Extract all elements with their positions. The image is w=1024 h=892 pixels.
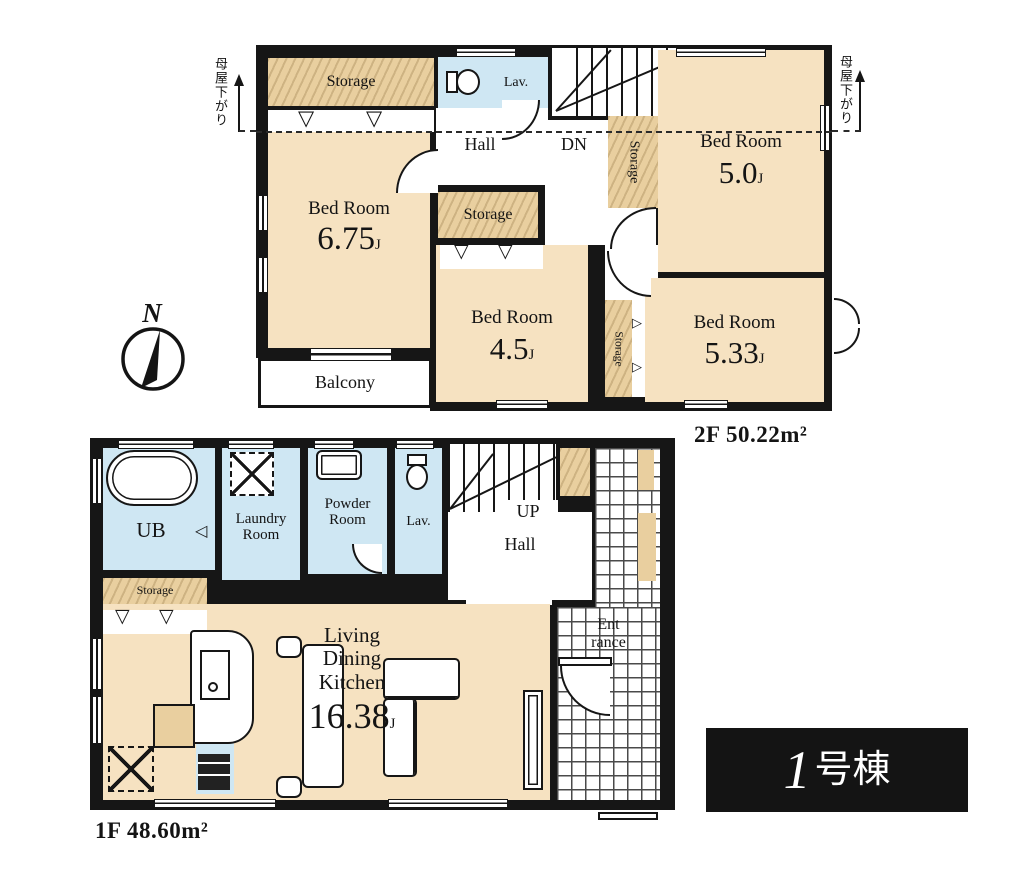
window	[92, 458, 102, 504]
stair-diagonal	[450, 456, 557, 510]
folding-door-mark: ◁	[195, 524, 207, 540]
toilet-icon	[405, 454, 431, 494]
dining-chair	[276, 636, 302, 658]
roof-dash-stub	[832, 130, 861, 132]
entrance-door-leaf	[558, 657, 612, 666]
room-storage-mid: Storage	[438, 192, 538, 238]
lav-1f-label: Lav.	[395, 510, 442, 534]
window	[92, 696, 102, 744]
sliding-window	[310, 348, 392, 361]
closet-door-mark: ▽	[159, 607, 174, 626]
floor-2f-plan: Balcony Storage ▽ ▽ Bed Room 6.75J Lav.	[256, 45, 832, 411]
window	[676, 48, 766, 57]
porch-step	[598, 812, 658, 820]
window	[118, 440, 194, 449]
window	[388, 799, 508, 808]
window	[396, 440, 434, 449]
storage-folding-front: ▷ ▷	[632, 300, 645, 397]
bathtub	[106, 450, 198, 506]
window	[154, 799, 276, 808]
window-swing-arc	[834, 298, 860, 324]
compass: N N	[112, 298, 198, 398]
window-swing-arc	[834, 328, 860, 354]
compass-needle	[141, 330, 160, 388]
closet-door-mark: ▽	[298, 108, 314, 129]
ub-label: UB	[121, 514, 181, 548]
compass-north-letter: N	[141, 298, 163, 328]
closet-door-mark: ▽	[115, 607, 130, 626]
dining-table	[302, 644, 344, 788]
room-storage-1f: Storage	[103, 578, 207, 604]
toilet-icon	[446, 65, 480, 99]
floor-1f-area-label: 1F 48.60m²	[95, 818, 208, 844]
building-number-box: 1 号棟	[706, 728, 968, 812]
closet-front: ▽ ▽	[440, 245, 543, 269]
room-ub: UB ◁	[103, 448, 215, 570]
window	[314, 440, 354, 449]
building-suffix: 号棟	[814, 751, 890, 789]
storage-1f-label: Storage	[103, 578, 207, 604]
shoe-cabinet	[560, 448, 590, 496]
room-hall-1f	[448, 512, 592, 600]
window	[92, 638, 102, 690]
laundry-label: Laundry Room	[222, 500, 300, 554]
room-bedroom-5-33	[645, 278, 824, 402]
appliance-space	[108, 746, 154, 792]
closet-door-mark: ▽	[454, 242, 469, 261]
window	[820, 105, 830, 151]
building-number: 1	[783, 743, 810, 797]
room-storage-se: Storage	[605, 300, 632, 397]
room-storage-nw: Storage	[268, 58, 434, 106]
folding-door-mark: ▷	[632, 316, 642, 329]
window	[496, 400, 548, 409]
storage-label: Storage	[438, 192, 538, 238]
sofa-vertical	[383, 698, 417, 777]
shoe-cabinet	[638, 513, 656, 581]
powder-label: Powder Room	[308, 486, 387, 538]
window	[684, 400, 728, 409]
storage-label: Storage	[613, 331, 625, 366]
balcony-label: Balcony	[261, 361, 429, 405]
roof-note-left: 母屋下がり	[211, 57, 230, 147]
closet-front: ▽ ▽	[268, 106, 434, 132]
floor-1f-plan: UB ◁ Storage Laundry Room Powder Room La…	[90, 438, 675, 810]
storage-label: Storage	[625, 141, 641, 184]
room-powder: Powder Room	[308, 448, 387, 574]
door-arc	[352, 544, 382, 574]
sink-icon	[316, 450, 362, 480]
room-storage-center: Storage	[608, 116, 658, 208]
tv-board	[523, 690, 543, 790]
room-lav-1f: Lav.	[395, 448, 442, 574]
window	[456, 48, 516, 57]
room-bedroom-6-75	[268, 106, 430, 348]
window	[228, 440, 274, 449]
room-laundry: Laundry Room	[222, 448, 300, 580]
window	[258, 257, 268, 293]
stair-diagonal	[449, 453, 494, 509]
sofa-horizontal	[383, 658, 460, 700]
storage-label: Storage	[268, 58, 434, 106]
floor-2f-area-label: 2F 50.22m²	[694, 422, 807, 448]
kitchen-sink	[200, 650, 230, 700]
room-balcony: Balcony	[258, 358, 432, 408]
window	[258, 195, 268, 231]
shoe-cabinet	[638, 450, 654, 490]
dining-chair	[276, 776, 302, 798]
folding-door-mark: ▷	[632, 360, 642, 373]
cabinet	[153, 704, 195, 748]
washing-machine-icon	[230, 452, 274, 496]
roof-dash-stub	[239, 130, 256, 132]
closet-door-mark: ▽	[366, 108, 382, 129]
stove	[198, 754, 230, 790]
floorplan-page: Balcony Storage ▽ ▽ Bed Room 6.75J Lav.	[0, 0, 1024, 892]
closet-door-mark: ▽	[498, 242, 513, 261]
room-bedroom-5-0	[658, 50, 824, 272]
stairs-up	[448, 444, 556, 512]
